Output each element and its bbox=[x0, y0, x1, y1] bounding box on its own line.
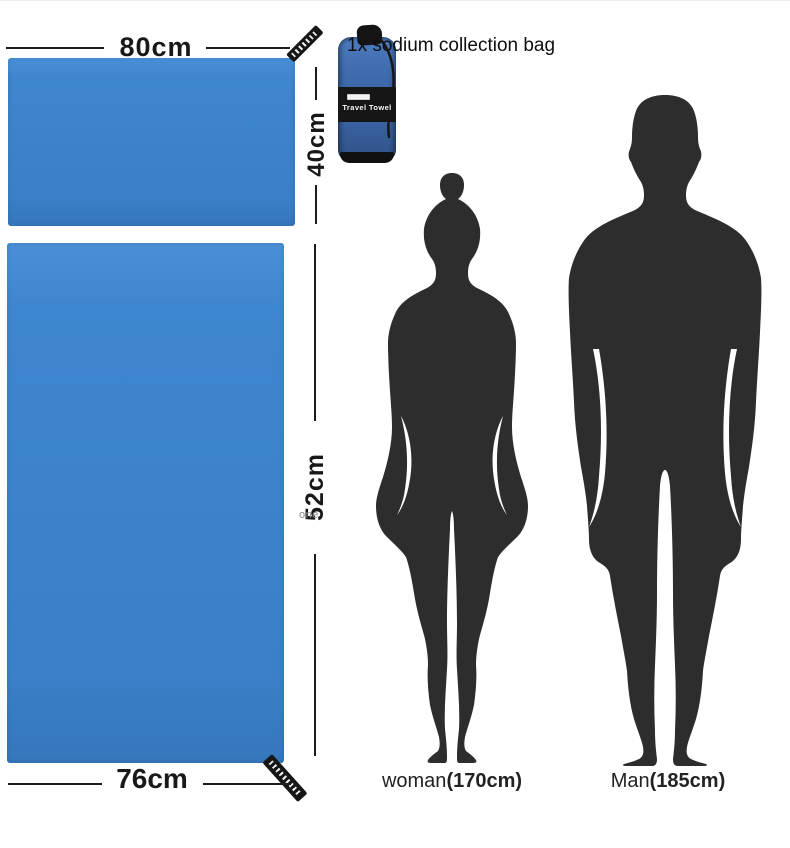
dim-line-80-left bbox=[6, 47, 104, 49]
woman-body-path bbox=[376, 173, 528, 763]
man-height: (185cm) bbox=[650, 770, 726, 792]
dim-line-52-top bbox=[314, 244, 316, 421]
woman-silhouette bbox=[370, 171, 535, 766]
dim-label-40cm: 40cm bbox=[302, 108, 332, 180]
tag-text-marks bbox=[269, 761, 301, 796]
dim-label-76cm: 76cm bbox=[103, 763, 201, 795]
brand-tag-icon bbox=[262, 754, 307, 802]
bag-brand-logo bbox=[347, 94, 370, 100]
man-label: Man(185cm) bbox=[563, 770, 773, 793]
woman-height: (170cm) bbox=[446, 770, 522, 792]
bag-label-text: Travel Towel bbox=[338, 103, 396, 112]
product-size-diagram: 1x sodium collection bag 80cm 40cm 52cm … bbox=[0, 0, 790, 848]
tag-text-marks bbox=[291, 30, 318, 57]
bag-bottom-rim bbox=[340, 152, 394, 163]
dim-label-80cm: 80cm bbox=[108, 32, 204, 63]
man-silhouette bbox=[545, 91, 785, 766]
small-towel bbox=[8, 58, 295, 226]
brand-tag-icon bbox=[286, 25, 323, 62]
dim-line-76-left bbox=[8, 783, 102, 785]
dim-line-52-bottom bbox=[314, 554, 316, 756]
dim-note-one: one bbox=[299, 509, 319, 521]
caption-sodium-collection-bag: 1x sodium collection bag bbox=[347, 35, 555, 57]
dim-line-40-top bbox=[315, 67, 317, 100]
man-name: Man bbox=[611, 770, 650, 792]
dim-line-76-right bbox=[203, 783, 291, 785]
large-towel bbox=[7, 243, 284, 763]
dim-line-40-bottom bbox=[315, 185, 317, 224]
woman-label: woman(170cm) bbox=[347, 770, 557, 793]
woman-name: woman bbox=[382, 770, 446, 792]
dim-line-80-right bbox=[206, 47, 290, 49]
man-body-path bbox=[569, 95, 762, 766]
bag-label-band: Travel Towel bbox=[338, 87, 396, 122]
